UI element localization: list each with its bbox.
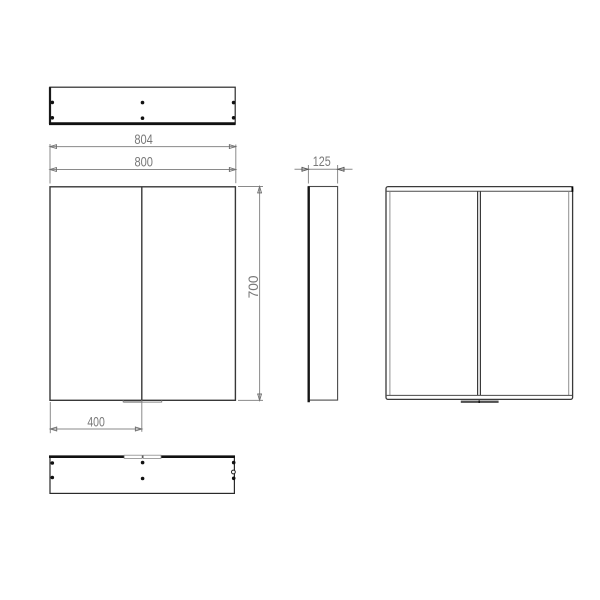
svg-text:400: 400 [87,414,105,430]
svg-text:800: 800 [134,154,153,170]
svg-text:804: 804 [134,131,153,147]
svg-text:125: 125 [313,153,331,169]
svg-text:700: 700 [245,275,261,298]
